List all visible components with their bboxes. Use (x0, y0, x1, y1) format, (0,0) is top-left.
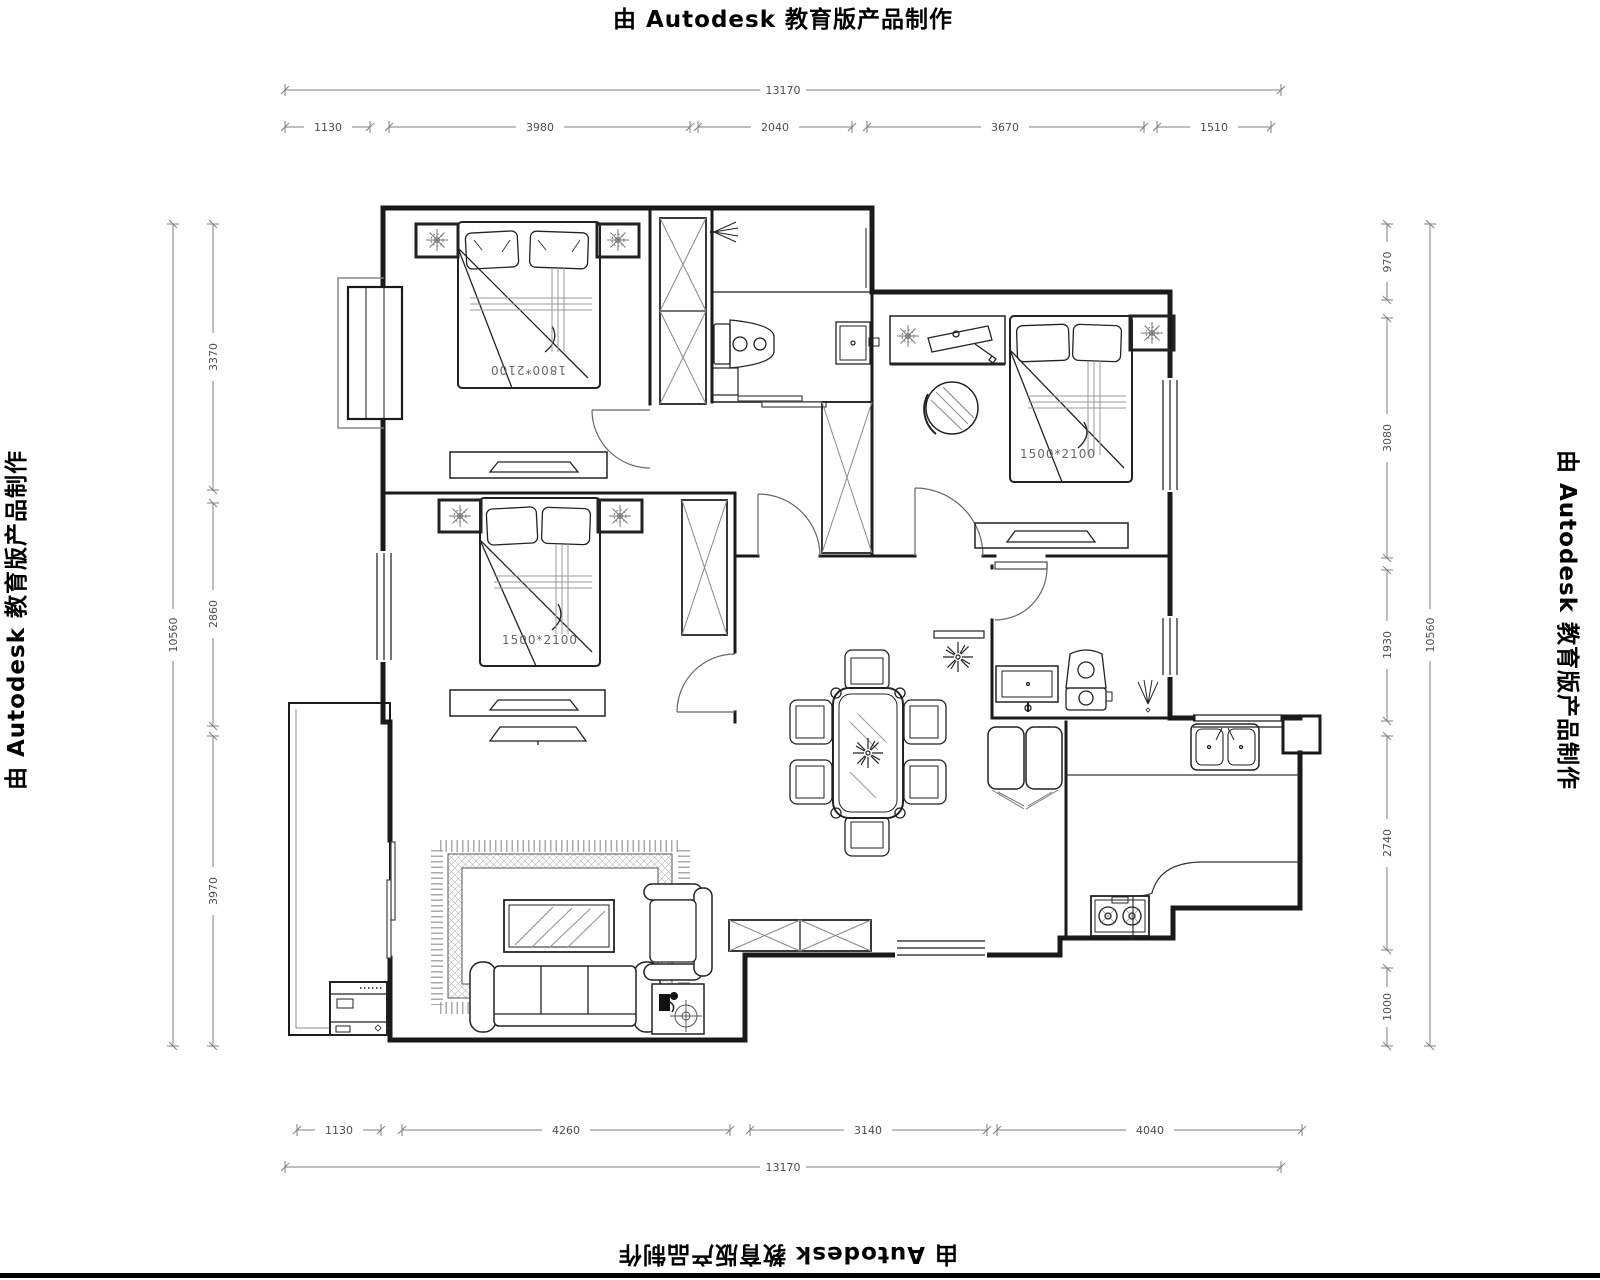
edition-notices: 由 Autodesk 教育版产品制作 由 Autodesk 教育版产品制作 由 … (3, 6, 1581, 1268)
dim-bottom-segments: 1130 4260 3140 4040 (297, 1123, 1302, 1137)
bedroom2-door (677, 654, 735, 712)
bed-size-label: 1500*2100 (1020, 447, 1096, 461)
coffee-table-icon (504, 900, 614, 952)
bed-third: 1500*2100 (1010, 316, 1132, 482)
edition-notice-left: 由 Autodesk 教育版产品制作 (3, 450, 30, 790)
sink-icon (996, 666, 1058, 712)
tv-living (490, 727, 586, 745)
dining-table-icon (831, 688, 905, 818)
dim-label: 3670 (991, 121, 1019, 134)
toilet-icon (714, 320, 774, 368)
wall-light-boxes (416, 224, 1174, 532)
living-room (437, 846, 712, 1034)
dim-label: 1510 (1200, 121, 1228, 134)
dining-chair (845, 816, 889, 856)
dining-chair (790, 700, 832, 744)
wall-light-icon (897, 325, 919, 347)
dim-label: 3370 (207, 343, 220, 371)
kitchen-sink-icon (1191, 724, 1259, 770)
dining-chair (904, 700, 946, 744)
bathroom1-sliding-door (738, 396, 826, 407)
dim-label: 3140 (854, 1124, 882, 1137)
bathroom2-door (995, 562, 1047, 620)
wall-light-icon (1141, 322, 1163, 344)
windows (348, 228, 1283, 958)
dim-label: 3970 (207, 877, 220, 905)
plant-icon (943, 642, 973, 672)
fridge-icon (988, 727, 1062, 809)
bedroom3-door (915, 488, 983, 556)
bed-second: 1500*2100 (480, 498, 600, 666)
dim-top-overall: 13170 (285, 83, 1281, 97)
dim-bottom-overall: 13170 (285, 1160, 1281, 1174)
bathroom1-step (712, 368, 738, 395)
bedroom2-window (374, 551, 394, 662)
shower-icon (711, 222, 739, 242)
side-table (652, 984, 704, 1034)
dim-label: 3080 (1381, 424, 1394, 452)
wall-light-icon (426, 229, 448, 251)
flue-block (1283, 716, 1320, 753)
dim-label: 2740 (1381, 829, 1394, 857)
dim-label: 1000 (1381, 993, 1394, 1021)
bedroom3-window (1160, 378, 1182, 492)
armchair-icon (644, 884, 712, 980)
tv-icon (1007, 531, 1095, 542)
dim-label: 3980 (526, 121, 554, 134)
dim-left-segments: 3370 2860 3970 (206, 224, 220, 1046)
dim-label: 1930 (1381, 631, 1394, 659)
wall-light-icon (449, 505, 471, 527)
washing-machine-icon (330, 982, 387, 1035)
dim-label: 1130 (314, 121, 342, 134)
dim-label: 4260 (552, 1124, 580, 1137)
dim-top-segments: 1130 3980 2040 3670 1510 (285, 120, 1271, 134)
dim-label: 13170 (766, 84, 801, 97)
desk-icon (928, 326, 996, 363)
cabinet-living (729, 920, 871, 951)
toilet-icon (1066, 650, 1112, 710)
bed-size-label: 1800*2100 (490, 363, 566, 377)
hall-closet (822, 402, 872, 553)
page-edge-line (0, 1273, 1600, 1278)
wall-light-icon (609, 505, 631, 527)
dim-label: 4040 (1136, 1124, 1164, 1137)
doors (387, 396, 1047, 958)
furniture: 1800*2100 1500*2100 1500*2100 (330, 218, 1259, 1035)
tv-icon (490, 700, 578, 710)
dim-label: 1130 (325, 1124, 353, 1137)
bed-master: 1800*2100 (458, 222, 600, 388)
tv-icon (490, 727, 586, 741)
desk-chair-icon (924, 382, 978, 434)
dim-label: 10560 (167, 618, 180, 653)
wardrobe-bedroom1 (660, 218, 706, 404)
dim-label: 970 (1381, 252, 1394, 273)
partition-walls (383, 208, 1193, 938)
balcony-sliding-door (387, 842, 395, 958)
kitchen-counter-lines (1066, 775, 1300, 938)
sofa-icon (470, 962, 660, 1032)
living-window (895, 939, 987, 958)
stove-icon (1091, 896, 1149, 936)
dim-right-overall: 10560 (1423, 224, 1437, 1046)
edition-notice-bottom: 由 Autodesk 教育版产品制作 (618, 1241, 958, 1268)
shower-icon (1138, 680, 1158, 712)
dining-set (790, 650, 946, 856)
dim-label: 2040 (761, 121, 789, 134)
kitchen-fixtures (988, 724, 1259, 936)
bathroom1-fixtures (711, 222, 880, 395)
hall-door (758, 494, 820, 556)
edition-notice-right: 由 Autodesk 教育版产品制作 (1554, 450, 1581, 790)
shelf (934, 631, 984, 638)
floorplan-svg: 13170 1130 3980 2040 3670 1510 113 (0, 0, 1600, 1280)
bay-window (348, 287, 402, 419)
wall-light-icon (607, 229, 629, 251)
tv-cabinet-bedroom2 (450, 690, 605, 716)
tv-cabinet-bedroom1 (450, 452, 607, 478)
dim-label: 13170 (766, 1161, 801, 1174)
bed-size-label: 1500*2100 (502, 633, 578, 647)
dining-chair (845, 650, 889, 690)
kitchen-corridor-window (1193, 715, 1283, 727)
dim-label: 2860 (207, 600, 220, 628)
dining-chair (790, 760, 832, 804)
bedroom1-door (592, 410, 650, 468)
tv-cabinet-bedroom3 (975, 523, 1128, 548)
edition-notice-top: 由 Autodesk 教育版产品制作 (613, 6, 953, 33)
dim-right-segments: 970 3080 1930 2740 1000 (1380, 224, 1394, 1046)
dim-label: 10560 (1424, 618, 1437, 653)
bathroom2-fixtures (934, 631, 1158, 712)
tv-icon (490, 462, 578, 472)
dining-chair (904, 760, 946, 804)
bathroom2-window (1160, 616, 1182, 677)
wardrobe-bedroom2 (682, 500, 727, 635)
cad-floorplan-page: 13170 1130 3980 2040 3670 1510 113 (0, 0, 1600, 1280)
dim-left-overall: 10560 (166, 224, 180, 1046)
